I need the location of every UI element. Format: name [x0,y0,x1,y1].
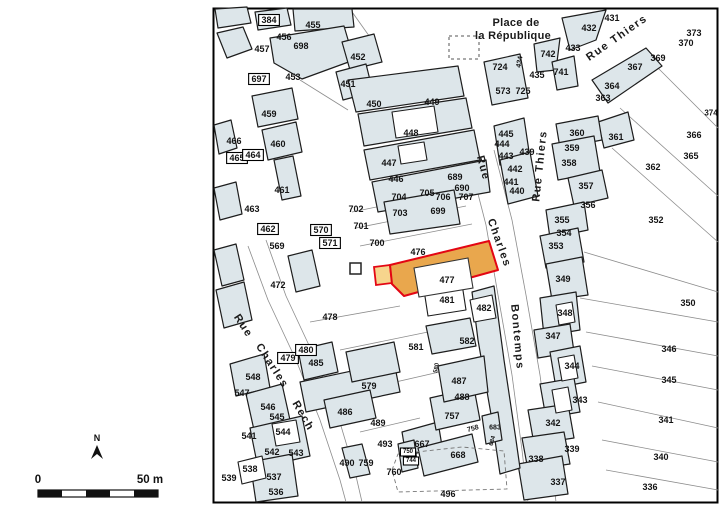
north-arrow: N [91,433,103,459]
parcel-label: 490 [339,458,354,468]
parcel-label: 581 [408,342,423,352]
parcel-label: 569 [269,241,284,251]
parcel-label: 481 [439,295,454,305]
parcel-label: 744 [406,458,417,464]
parcel-label: 358 [561,158,576,168]
parcel-label: 479 [280,353,295,363]
parcel-label: 478 [322,312,337,322]
parcel-label: 690 [454,183,469,193]
parcel-label: 457 [254,44,269,54]
parcel-label: 338 [528,454,543,464]
parcel-label: 344 [564,361,579,371]
parcel-label: 453 [285,72,300,82]
parcel-label: 362 [645,162,660,172]
parcel-label: 546 [260,402,275,412]
parcel-label: 447 [381,158,396,168]
parcel-label: 345 [661,375,676,385]
parcel-label: 356 [580,200,595,210]
parcel-label: 548 [245,372,260,382]
cadastral-map-page: 3844554564576986974534524514594504494484… [0,0,724,512]
parcel-label: 442 [507,164,522,174]
parcel-label: 480 [298,345,313,355]
parcel-label: 476 [410,247,425,257]
parcel-label: 455 [305,20,320,30]
parcel-label: 435 [529,70,544,80]
parcel-label: 464 [245,150,260,160]
parcel-label: 347 [545,331,560,341]
parcel-label: 750 [403,449,414,455]
parcel-label: 724 [492,62,507,72]
parcel-label: 536 [268,487,283,497]
parcel-label: 573 [495,86,510,96]
parcel-label: 742 [540,49,555,59]
parcel-label: 472 [270,280,285,290]
parcel-label: 706 [435,192,450,202]
place-label-line1: Place de [492,17,539,29]
scale-bar-segment [86,490,110,497]
parcel-label: 544 [275,427,290,437]
parcel-label: 485 [308,358,323,368]
parcel-label: 705 [419,188,434,198]
parcel-label: 342 [545,418,560,428]
parcel-label: 741 [553,67,568,77]
parcel-label: 582 [459,336,474,346]
parcel-label: 373 [686,28,701,38]
parcel-label: 697 [251,74,266,84]
parcel-label: 539 [221,473,236,483]
parcel-label: 370 [678,38,693,48]
parcel-label: 439 [519,147,534,157]
scale-bar: 050 m [35,474,163,497]
parcel-label: 367 [627,62,642,72]
parcel-label: 489 [370,418,385,428]
parcel-label: 340 [653,452,668,462]
parcel-label: 700 [369,238,384,248]
parcel-label: 466 [226,136,241,146]
parcel-label: 463 [244,204,259,214]
parcel-label: 354 [556,228,571,238]
parcel-label: 538 [242,464,257,474]
parcel-label: 456 [276,32,291,42]
parcel-label: 667 [414,439,429,449]
parcel-label: 449 [424,97,439,107]
north-label: N [94,433,101,443]
parcel-label: 361 [608,132,623,142]
parcel-label: 460 [270,139,285,149]
parcel-label: 702 [348,204,363,214]
highlighted-parcel-annex [374,265,392,285]
parcel-label: 570 [313,225,328,235]
parcel-label: 364 [604,81,619,91]
parcel-label: 459 [261,109,276,119]
north-needle-icon [91,445,103,459]
parcel-label: 488 [454,392,469,402]
parcel-label: 343 [572,395,587,405]
parcel-label: 701 [353,221,368,231]
parcel-label: 446 [388,174,403,184]
parcel-label: 757 [444,411,459,421]
parcel-label: 493 [377,439,392,449]
parcel-label: 537 [266,472,281,482]
parcel-label: 487 [451,376,466,386]
parcel-label: 542 [264,447,279,457]
parcel-label: 363 [595,93,610,103]
scale-start-label: 0 [35,474,41,486]
parcel-label: 448 [403,128,418,138]
parcel-label: 359 [564,143,579,153]
parcel-label: 571 [322,238,337,248]
parcel-label: 445 [498,129,513,139]
parcel-label: 337 [550,477,565,487]
cadastral-map: 3844554564576986974534524514594504494484… [0,0,724,512]
parcel-label: 384 [261,15,276,25]
parcel-label: 579 [361,381,376,391]
parcel-label: 357 [578,181,593,191]
parcel-label: 450 [366,99,381,109]
parcel-label: 543 [288,448,303,458]
parcel-label: 547 [234,388,249,398]
parcel-label: 707 [458,192,473,202]
parcel-label: 451 [340,79,355,89]
parcel-label: 366 [686,130,701,140]
parcel-label: 440 [509,186,524,196]
parcel-label: 353 [548,241,563,251]
parcel-label: 699 [430,206,445,216]
parcel-label: 725 [515,86,530,96]
scale-bar-segment [134,490,158,497]
parcel-label: 683 [489,425,501,432]
parcel-label: 461 [274,185,289,195]
parcel-label: 452 [350,52,365,62]
parcel-label: 341 [658,415,673,425]
parcel-label: 355 [554,215,569,225]
parcel-label: 336 [642,482,657,492]
parcel-label: 349 [555,274,570,284]
parcel-label: 339 [564,444,579,454]
parcel-label: 374 [704,109,718,118]
parcel-label: 432 [581,23,596,33]
parcel-label: 433 [565,43,580,53]
parcel-label: 496 [440,489,455,499]
parcel-label: 668 [450,450,465,460]
parcel-label: 477 [439,275,454,285]
parcel-label: 350 [680,298,695,308]
small-square-feature [350,263,361,274]
inner-parcel [552,387,572,413]
parcel-label: 352 [648,215,663,225]
parcel-label: 689 [447,172,462,182]
parcel-label: 431 [604,13,619,23]
place-label-line2: la République [475,30,551,42]
parcel-label: 346 [661,344,676,354]
parcel-label: 760 [386,467,401,477]
parcel-label: 462 [260,224,275,234]
parcel-label: 444 [494,139,509,149]
parcel-label: 486 [337,407,352,417]
parcel-label: 360 [569,128,584,138]
scale-bar-segment [38,490,62,497]
parcel-label: 703 [392,208,407,218]
parcel-label: 541 [241,431,256,441]
parcel-label: 348 [557,308,572,318]
parcel-label: 482 [476,303,491,313]
parcel-label: 369 [650,53,665,63]
parcel-label: 698 [293,41,308,51]
scale-end-label: 50 m [137,474,163,486]
parcel-label: 443 [498,151,513,161]
parcel-label: 545 [269,412,284,422]
parcel-label: 365 [683,151,698,161]
parcel-label: 759 [358,458,373,468]
inner-parcel [398,142,427,164]
parcel-label: 704 [391,192,406,202]
